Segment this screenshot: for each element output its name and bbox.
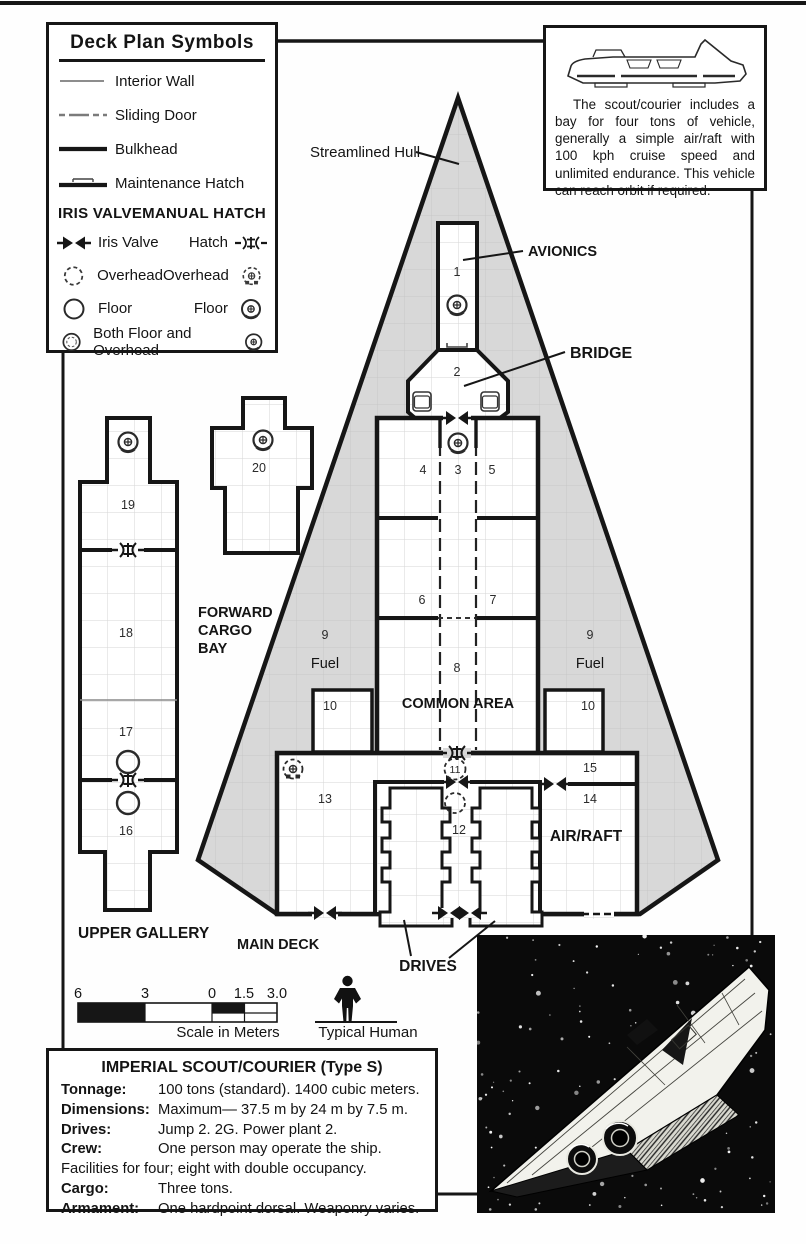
room-number-3: 3 [455,463,462,477]
room-number-13: 13 [318,792,332,806]
floor-manual-hatch-icon [234,297,268,321]
stats-value: Jump 2. 2G. Power plant 2. [158,1122,337,1138]
legend-row-floor: Floor Floor [49,292,275,325]
label-main-deck: MAIN DECK [237,937,320,953]
scale-tick: 3 [141,986,149,1002]
stats-title: IMPERIAL SCOUT/COURIER (Type S) [61,1059,423,1077]
stats-label: Armament: [61,1200,158,1220]
overhead-iris-icon [56,264,91,288]
room-number-7: 7 [490,593,497,607]
label-common-area: COMMON AREA [402,696,515,712]
stats-row-dimensions: Dimensions:Maximum— 37.5 m by 24 m by 7.… [61,1101,423,1121]
label-forward-cargo-2: CARGO [198,623,252,639]
air-raft-side-view [555,32,755,94]
both-floor-overhead-iris-icon [56,330,87,354]
room-number-1: 1 [454,265,461,279]
stats-row-armament: Armament:One hardpoint dorsal. Weaponry … [61,1200,423,1220]
ship-stats-box: IMPERIAL SCOUT/COURIER (Type S) Tonnage:… [46,1048,438,1212]
both-floor-overhead-manual-icon [239,330,268,354]
manual-hatch-icon [234,232,268,254]
room-number-19: 19 [121,498,135,512]
room-20-section [212,398,312,553]
stats-row-crew: Crew:One person may operate the ship. Fa… [61,1140,423,1180]
overhead-manual-hatch-icon [235,264,268,288]
label-upper-gallery: UPPER GALLERY [78,925,210,942]
room-number-6: 6 [419,593,426,607]
room-number-8: 8 [454,661,461,675]
stats-value: Three tons. [158,1181,233,1197]
vehicle-note-text: The scout/courier includes a bay for fou… [555,96,755,199]
maintenance-hatch-icon [57,176,109,190]
legend-col-manual-hatch: MANUAL HATCH [142,205,266,222]
stats-label: Cargo: [61,1180,158,1200]
legend-label: Both Floor and Overhead [93,325,239,359]
stats-label: Dimensions: [61,1101,158,1121]
legend-label: Overhead [97,267,163,284]
label-air-raft: AIR/RAFT [550,828,623,845]
typical-human-caption: Typical Human [318,1024,417,1041]
stats-value: 100 tons (standard). 1400 cubic meters. [158,1082,420,1098]
stats-value: One hardpoint dorsal. Weaponry varies. [158,1201,419,1217]
room-number-2: 2 [454,365,461,379]
stats-label: Drives: [61,1121,158,1141]
scale-tick: 0 [208,986,216,1002]
legend-row-interior-wall: Interior Wall [49,64,275,98]
legend-label: Maintenance Hatch [115,175,244,192]
label-fuel-right: Fuel [576,656,604,672]
stats-row-cargo: Cargo:Three tons. [61,1180,423,1200]
legend-row-both: Both Floor and Overhead [49,325,275,358]
room-number-4: 4 [420,463,427,477]
scale-bar: 6 3 0 1.5 3.0 Scale in Meters [74,986,287,1041]
scale-tick: 3.0 [267,986,287,1002]
room-number-5: 5 [489,463,496,477]
room-number-10-left: 10 [323,699,337,713]
label-bridge: BRIDGE [570,345,633,362]
sliding-door-icon [57,109,109,121]
room-number-10-right: 10 [581,699,595,713]
legend-label: Overhead [163,267,229,284]
scale-tick: 1.5 [234,986,254,1002]
label-avionics: AVIONICS [528,244,597,260]
floor-iris-icon [56,297,92,321]
typical-human-figure: Typical Human [315,976,418,1041]
legend-label: Bulkhead [115,141,178,158]
legend-label: Sliding Door [115,107,197,124]
stats-row-tonnage: Tonnage:100 tons (standard). 1400 cubic … [61,1081,423,1101]
ship-space-illustration [477,935,775,1213]
stats-label: Tonnage: [61,1081,158,1101]
deck-plan-page: Streamlined Hull AVIONICS BRIDGE FORWARD… [0,0,806,1244]
legend-title: Deck Plan Symbols [49,25,275,54]
stats-row-drives: Drives:Jump 2. 2G. Power plant 2. [61,1121,423,1141]
room-number-17: 17 [119,725,133,739]
legend-row-maintenance-hatch: Maintenance Hatch [49,166,275,200]
stats-value: Maximum— 37.5 m by 24 m by 7.5 m. [158,1102,408,1118]
drive-unit [470,788,542,926]
room-number-15: 15 [583,761,597,775]
room-number-14: 14 [583,792,597,806]
iris-valve-icon [56,232,92,254]
legend-title-rule [59,59,265,62]
legend-row-sliding-door: Sliding Door [49,98,275,132]
legend-row-bulkhead: Bulkhead [49,132,275,166]
room-number-16: 16 [119,824,133,838]
vehicle-note-box: The scout/courier includes a bay for fou… [543,25,767,191]
legend-row-overhead: Overhead Overhead [49,259,275,292]
legend-label: Iris Valve [98,234,159,251]
legend-row-valve-hatch: Iris Valve Hatch [49,226,275,259]
scale-tick: 6 [74,986,82,1002]
interior-wall-icon [57,75,109,87]
room-number-11: 11 [450,764,461,776]
label-streamlined-hull: Streamlined Hull [310,144,420,161]
legend-label: Hatch [189,234,228,251]
room-number-12: 12 [452,823,466,837]
legend-label: Floor [194,300,228,317]
label-fuel-left: Fuel [311,656,339,672]
scale-caption: Scale in Meters [176,1024,279,1041]
label-forward-cargo-3: BAY [198,641,228,657]
label-drives: DRIVES [399,958,457,975]
legend-label: Floor [98,300,132,317]
room-number-9-left: 9 [322,628,329,642]
legend-box: Deck Plan Symbols Interior Wall Sliding … [46,22,278,353]
room-number-20: 20 [252,461,266,475]
bulkhead-icon [57,143,109,155]
stats-label: Crew: [61,1140,158,1160]
legend-col-iris-valve: IRIS VALVE [58,205,142,222]
label-forward-cargo-1: FORWARD [198,605,273,621]
room-number-9-right: 9 [587,628,594,642]
room-number-18: 18 [119,626,133,640]
drive-unit [380,788,452,926]
legend-label: Interior Wall [115,73,194,90]
